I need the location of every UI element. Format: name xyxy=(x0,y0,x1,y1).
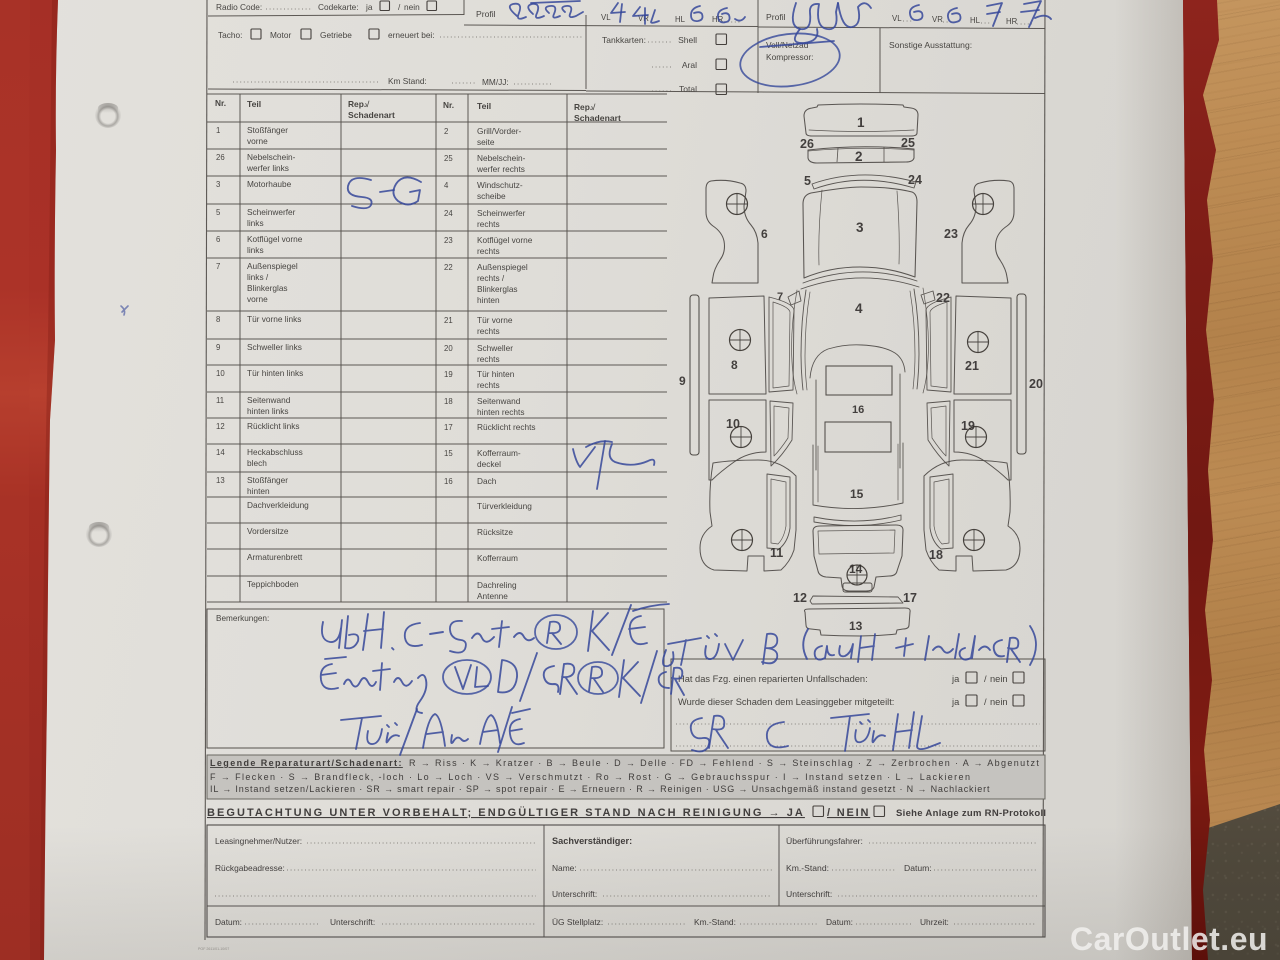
svg-text:Teppichboden: Teppichboden xyxy=(247,579,299,589)
svg-text:23: 23 xyxy=(944,227,958,241)
svg-text:links: links xyxy=(247,218,264,228)
svg-text:19: 19 xyxy=(444,370,453,379)
svg-text:Stoßfänger: Stoßfänger xyxy=(247,475,288,485)
svg-text:Siehe Anlage zum RN-Protokoll: Siehe Anlage zum RN-Protokoll xyxy=(896,808,1046,819)
svg-text:Rep.: Rep. xyxy=(348,99,366,109)
svg-text:11: 11 xyxy=(216,396,224,405)
svg-text:Leasingnehmer/Nutzer:: Leasingnehmer/Nutzer: xyxy=(215,836,302,846)
svg-text:Seitenwand: Seitenwand xyxy=(247,395,291,405)
svg-text:Nr.: Nr. xyxy=(443,100,454,110)
svg-text:Schadenart: Schadenart xyxy=(574,113,621,123)
svg-text:8: 8 xyxy=(216,315,220,324)
svg-text:ja: ja xyxy=(365,2,373,12)
svg-text:Wurde dieser Schaden dem Leasi: Wurde dieser Schaden dem Leasinggeber mi… xyxy=(678,697,894,707)
svg-text:√: √ xyxy=(365,100,370,109)
svg-text:14: 14 xyxy=(216,448,225,457)
svg-text:Bemerkungen:: Bemerkungen: xyxy=(216,614,269,623)
svg-text:Kofferraum: Kofferraum xyxy=(477,553,518,563)
svg-text:6: 6 xyxy=(216,235,220,244)
svg-text:Außenspiegel: Außenspiegel xyxy=(247,261,298,271)
svg-text:Datum:: Datum: xyxy=(826,917,853,927)
svg-text:8: 8 xyxy=(731,358,738,372)
svg-text:ÜG Stellplatz:: ÜG Stellplatz: xyxy=(552,917,603,927)
svg-text:Nebelschein-: Nebelschein- xyxy=(477,153,526,163)
svg-text:25: 25 xyxy=(444,154,453,163)
svg-text:13: 13 xyxy=(216,476,225,485)
svg-text:Dachreling: Dachreling xyxy=(477,580,517,590)
svg-text:blech: blech xyxy=(247,458,267,468)
svg-text:11: 11 xyxy=(770,546,783,560)
svg-text:Dachverkleidung: Dachverkleidung xyxy=(247,500,309,510)
svg-text:Antenne: Antenne xyxy=(477,591,508,601)
svg-text:VL: VL xyxy=(601,13,611,22)
svg-text:Scheinwerfer: Scheinwerfer xyxy=(477,208,526,218)
svg-text:26: 26 xyxy=(216,153,225,162)
svg-text:Windschutz-: Windschutz- xyxy=(477,180,523,190)
svg-text:VL: VL xyxy=(892,14,902,23)
svg-text:17: 17 xyxy=(444,423,453,432)
svg-text:Motor: Motor xyxy=(270,30,291,40)
svg-text:Teil: Teil xyxy=(247,99,261,109)
svg-text:Tür hinten: Tür hinten xyxy=(477,369,515,379)
svg-text:IL → Instand setzen/Lackieren: IL → Instand setzen/Lackieren · SR → sma… xyxy=(210,784,990,794)
svg-text:links: links xyxy=(247,245,264,255)
svg-text:Vordersitze: Vordersitze xyxy=(247,526,289,536)
svg-text:Radio Code:: Radio Code: xyxy=(216,2,262,12)
svg-text:Tankkarten:: Tankkarten: xyxy=(602,35,646,45)
svg-text:nein: nein xyxy=(990,674,1008,684)
svg-text:22: 22 xyxy=(444,263,453,272)
svg-text:hinten links: hinten links xyxy=(247,406,289,416)
svg-text:Armaturenbrett: Armaturenbrett xyxy=(247,552,303,562)
svg-text:/: / xyxy=(984,674,987,684)
svg-text:HL: HL xyxy=(675,15,686,24)
svg-text:rechts: rechts xyxy=(477,380,500,390)
svg-text:Überführungsfahrer:: Überführungsfahrer: xyxy=(786,836,863,846)
svg-text:Rücklicht rechts: Rücklicht rechts xyxy=(477,422,536,432)
svg-text:Getriebe: Getriebe xyxy=(320,30,352,40)
svg-text:rechts: rechts xyxy=(477,246,500,256)
svg-text:Profil: Profil xyxy=(476,9,496,19)
svg-text:Türverkleidung: Türverkleidung xyxy=(477,501,532,511)
svg-text:2: 2 xyxy=(444,127,448,136)
svg-text:werfer links: werfer links xyxy=(246,163,289,173)
svg-text:5: 5 xyxy=(804,174,811,188)
svg-text:Km Stand:: Km Stand: xyxy=(388,76,427,86)
svg-text:18: 18 xyxy=(929,548,943,562)
svg-text:rechts: rechts xyxy=(477,326,500,336)
svg-text:rechts: rechts xyxy=(477,354,500,364)
svg-text:F → Flecken · S → Brandfleck,: F → Flecken · S → Brandfleck, -loch · Lo… xyxy=(210,772,971,782)
svg-text:Total: Total xyxy=(679,84,697,94)
svg-text:3: 3 xyxy=(856,220,864,235)
svg-text:7: 7 xyxy=(216,262,220,271)
svg-text:Tür vorne: Tür vorne xyxy=(477,315,513,325)
svg-text:16: 16 xyxy=(852,404,864,416)
svg-text:HR: HR xyxy=(1006,17,1018,26)
svg-text:Tür vorne links: Tür vorne links xyxy=(247,314,301,324)
svg-text:Schadenart: Schadenart xyxy=(348,110,395,120)
svg-text:Kotflügel vorne: Kotflügel vorne xyxy=(477,235,533,245)
svg-text:werfer rechts: werfer rechts xyxy=(476,164,525,174)
svg-text:Uhrzeit:: Uhrzeit: xyxy=(920,917,949,927)
svg-text:rechts /: rechts / xyxy=(477,273,505,283)
svg-text:Tür hinten links: Tür hinten links xyxy=(247,368,303,378)
svg-text:Blinkerglas: Blinkerglas xyxy=(247,283,288,293)
svg-text:4: 4 xyxy=(855,301,863,316)
svg-text:Rücklicht links: Rücklicht links xyxy=(247,421,300,431)
svg-text:20: 20 xyxy=(444,344,453,353)
svg-text:hinten rechts: hinten rechts xyxy=(477,407,525,417)
svg-text:23: 23 xyxy=(444,236,453,245)
svg-text:Shell: Shell xyxy=(678,35,697,45)
svg-text:5: 5 xyxy=(216,208,221,217)
svg-text:vorne: vorne xyxy=(247,136,268,146)
svg-text:10: 10 xyxy=(216,369,225,378)
svg-text:Kotflügel vorne: Kotflügel vorne xyxy=(247,234,303,244)
svg-text:seite: seite xyxy=(477,137,495,147)
svg-text:9: 9 xyxy=(679,374,686,388)
svg-text:3: 3 xyxy=(216,180,220,189)
svg-text:Kompressor:: Kompressor: xyxy=(766,52,813,62)
svg-text:links /: links / xyxy=(247,272,269,282)
svg-text:18: 18 xyxy=(444,397,453,406)
svg-text:26: 26 xyxy=(800,137,814,151)
svg-text:Datum:: Datum: xyxy=(215,917,242,927)
svg-text:Dach: Dach xyxy=(477,476,497,486)
svg-text:14: 14 xyxy=(849,562,863,576)
svg-text:Name:: Name: xyxy=(552,863,577,873)
svg-text:Rückgabeadresse:: Rückgabeadresse: xyxy=(215,863,285,873)
svg-text:Sonstige Ausstattung:: Sonstige Ausstattung: xyxy=(889,40,972,50)
svg-text:16: 16 xyxy=(444,477,453,486)
svg-text:Seitenwand: Seitenwand xyxy=(477,396,521,406)
svg-text:1: 1 xyxy=(857,115,865,130)
svg-text:Km.-Stand:: Km.-Stand: xyxy=(786,863,829,873)
svg-text:12: 12 xyxy=(216,422,225,431)
svg-text:ja: ja xyxy=(951,697,960,707)
svg-text:15: 15 xyxy=(444,449,453,458)
svg-text:Rücksitze: Rücksitze xyxy=(477,527,513,537)
svg-text:hinten: hinten xyxy=(477,295,500,305)
svg-text:/: / xyxy=(398,2,401,12)
svg-text:MM/JJ:: MM/JJ: xyxy=(482,77,509,87)
svg-text:scheibe: scheibe xyxy=(477,191,506,201)
svg-text:Rep.: Rep. xyxy=(574,102,592,112)
svg-text:Schweller: Schweller xyxy=(477,343,513,353)
svg-text:rechts: rechts xyxy=(477,219,500,229)
svg-text:/ NEIN: / NEIN xyxy=(827,807,870,819)
svg-text:Km.-Stand:: Km.-Stand: xyxy=(694,917,736,927)
svg-text:20: 20 xyxy=(1029,377,1043,391)
svg-text:Hat das Fzg. einen reparierten: Hat das Fzg. einen reparierten Unfallsch… xyxy=(678,674,868,684)
svg-text:nein: nein xyxy=(404,2,420,12)
svg-text:Sachverständiger:: Sachverständiger: xyxy=(552,836,632,846)
svg-text:ja: ja xyxy=(951,674,960,684)
svg-text:Nebelschein-: Nebelschein- xyxy=(247,152,296,162)
svg-text:Unterschrift:: Unterschrift: xyxy=(552,889,597,899)
svg-text:Datum:: Datum: xyxy=(904,863,932,873)
svg-text:21: 21 xyxy=(444,316,453,325)
svg-text:Außenspiegel: Außenspiegel xyxy=(477,262,528,272)
svg-text:VR: VR xyxy=(932,15,943,24)
svg-text:Motorhaube: Motorhaube xyxy=(247,179,292,189)
svg-text:POF 2611/01-10/07: POF 2611/01-10/07 xyxy=(198,947,229,951)
svg-text:Tacho:: Tacho: xyxy=(218,30,242,40)
svg-text:17: 17 xyxy=(903,591,917,605)
svg-text:/: / xyxy=(984,697,987,707)
svg-text:2: 2 xyxy=(855,149,863,164)
svg-text:15: 15 xyxy=(850,487,864,501)
svg-text:24: 24 xyxy=(444,209,453,218)
svg-text:vorne: vorne xyxy=(247,294,268,304)
svg-text:21: 21 xyxy=(965,359,979,373)
svg-text:nein: nein xyxy=(990,697,1008,707)
svg-text:Blinkerglas: Blinkerglas xyxy=(477,284,518,294)
svg-text:Teil: Teil xyxy=(477,101,491,111)
svg-text:Legende Reparaturart/Schadenar: Legende Reparaturart/Schadenart: xyxy=(210,758,403,768)
svg-text:Nr.: Nr. xyxy=(215,98,226,108)
svg-text:9: 9 xyxy=(216,343,220,352)
svg-text:Scheinwerfer: Scheinwerfer xyxy=(247,207,296,217)
svg-text:4: 4 xyxy=(444,181,449,190)
svg-text:12: 12 xyxy=(793,591,807,605)
svg-text:19: 19 xyxy=(961,419,975,433)
svg-text:1: 1 xyxy=(216,126,220,135)
svg-text:Schweller links: Schweller links xyxy=(247,342,302,352)
svg-text:Aral: Aral xyxy=(682,60,697,70)
svg-text:HL: HL xyxy=(970,16,981,25)
svg-text:10: 10 xyxy=(726,417,740,431)
svg-text:√: √ xyxy=(591,103,596,112)
svg-text:Stoßfänger: Stoßfänger xyxy=(247,125,288,135)
svg-text:Grill/Vorder-: Grill/Vorder- xyxy=(477,126,521,136)
svg-text:Profil: Profil xyxy=(766,12,786,22)
svg-text:erneuert bei:: erneuert bei: xyxy=(388,30,435,40)
svg-text:hinten: hinten xyxy=(247,486,270,496)
svg-text:Codekarte:: Codekarte: xyxy=(318,2,359,12)
svg-text:13: 13 xyxy=(849,619,863,633)
svg-text:Kofferraum-: Kofferraum- xyxy=(477,448,521,458)
svg-text:Heckabschluss: Heckabschluss xyxy=(247,447,303,457)
svg-text:Unterschrift:: Unterschrift: xyxy=(786,889,832,899)
svg-text:deckel: deckel xyxy=(477,459,501,469)
svg-text:BEGUTACHTUNG UNTER VORBEHALT;: BEGUTACHTUNG UNTER VORBEHALT; ENDGÜLTIGE… xyxy=(207,806,805,819)
svg-text:Unterschrift:: Unterschrift: xyxy=(330,917,375,927)
svg-text:6: 6 xyxy=(761,227,768,241)
svg-text:R → Riss · K → Kratzer · B → B: R → Riss · K → Kratzer · B → Beule · D →… xyxy=(409,758,1040,768)
